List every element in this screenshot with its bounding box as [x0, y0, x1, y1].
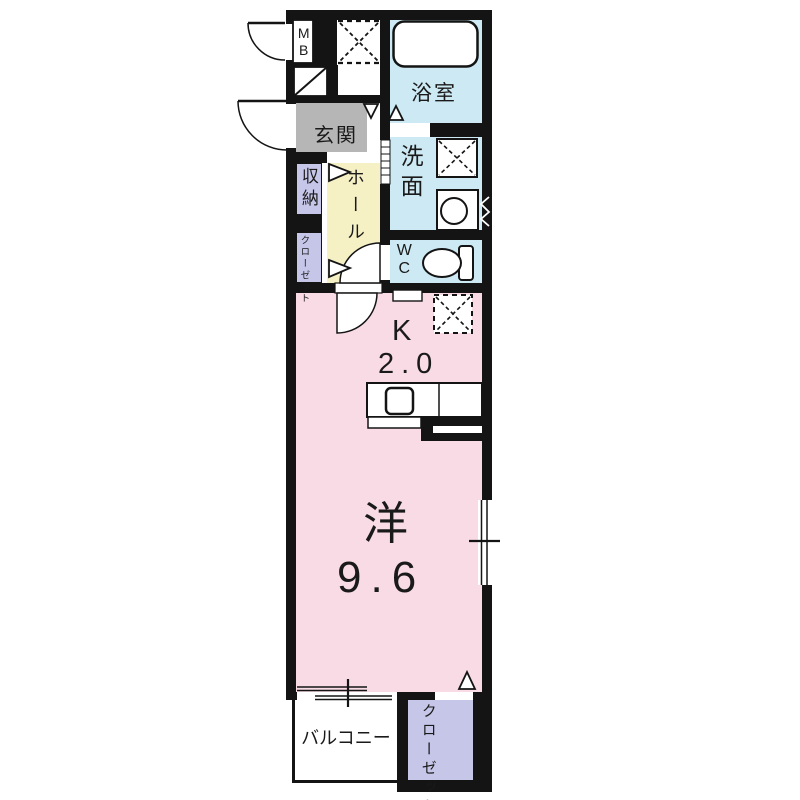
hall-door-leaf	[335, 283, 382, 293]
storage-label: 収納	[299, 167, 317, 211]
service-space-icon	[338, 20, 380, 64]
hall-door-swing-arc	[340, 243, 380, 283]
opening-marker-down	[364, 104, 378, 118]
western-room-label: 洋	[363, 500, 408, 547]
entrance-door-swing	[238, 101, 287, 150]
wall-cabinet	[393, 290, 422, 301]
lower-closet-label: クローゼット	[417, 703, 439, 800]
toilet-icon	[423, 246, 473, 280]
washroom-label: 洗面	[398, 144, 422, 204]
upper-closet-label: クローゼット	[297, 235, 309, 304]
pipe-space-icon	[294, 67, 327, 96]
hall-label: ホール	[345, 168, 364, 249]
upper-closet-label-col2: ゼット	[297, 270, 309, 305]
kitchen-label: K	[392, 316, 411, 346]
kitchen-counter-icon	[367, 383, 482, 428]
sliding-door-icon	[297, 679, 392, 707]
meter-box-label: MB	[296, 25, 311, 59]
refrigerator-area-icon	[434, 295, 472, 333]
entrance-label: 玄関	[314, 126, 358, 147]
washroom-sliding-door	[381, 140, 390, 184]
bath-label: 浴室	[411, 83, 457, 105]
wc-door-opening	[381, 245, 390, 280]
plan-linework	[0, 0, 800, 800]
washing-machine-area-icon	[437, 139, 477, 177]
upper-closet-label-col1: クロー	[297, 235, 309, 270]
window-icon	[469, 500, 500, 585]
western-room-area-label: 9.6	[337, 555, 425, 601]
kitchen-area-label: 2.0	[378, 349, 439, 379]
bathtub-icon	[394, 22, 478, 67]
counter-vent-slot	[433, 426, 482, 433]
meter-box-door-swing	[248, 23, 285, 60]
balcony-label: バルコニー	[296, 729, 396, 748]
lower-closet-label-col1: クロー	[417, 703, 439, 760]
closet-door-marker	[459, 672, 475, 689]
floor-plan: MB 浴室 洗面 WC 玄関 収納 クローゼット ホール K 2.0 洋 9.6…	[0, 0, 800, 800]
kitchen-sink-icon	[386, 388, 413, 414]
washbasin-icon	[437, 190, 478, 230]
wc-label: WC	[395, 242, 412, 278]
bath-door-marker	[389, 106, 403, 120]
mirror-icon	[481, 197, 489, 226]
kitchen-door-swing-arc	[337, 293, 377, 333]
lower-closet-label-col2: ゼット	[417, 760, 439, 800]
